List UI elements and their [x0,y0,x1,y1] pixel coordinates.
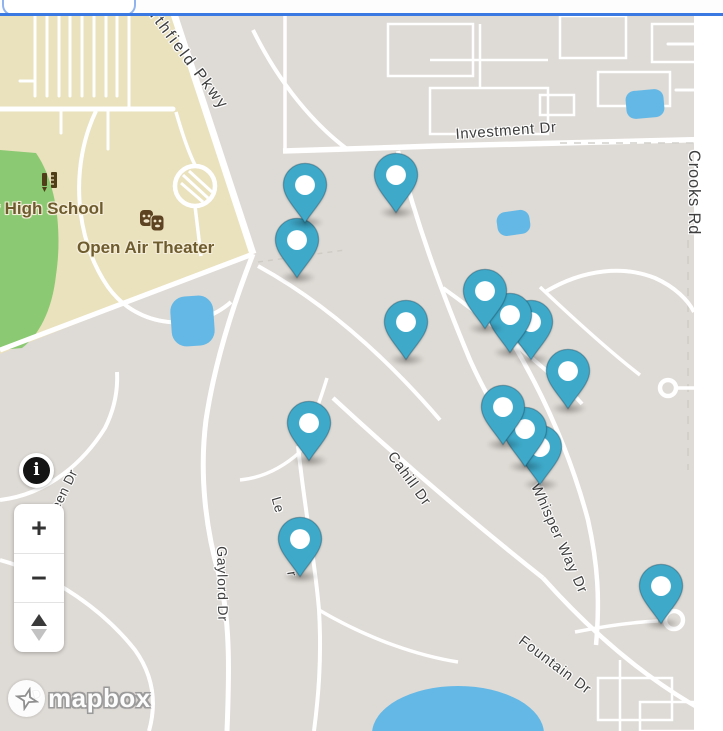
map-base [0,0,723,731]
map-marker[interactable] [372,152,420,214]
topbar-divider [0,13,723,16]
school-icon [38,170,62,199]
compass-pitch-button[interactable] [14,603,64,652]
map-marker[interactable] [382,299,430,361]
map-canvas[interactable]: Troy High School Open Air Theater Northf… [0,0,723,731]
map-marker[interactable] [285,400,333,462]
map-marker[interactable] [276,516,324,578]
mapbox-logo-icon [8,680,45,717]
info-icon: i [23,457,50,484]
street-label: Gaylord Dr [214,546,231,622]
zoom-control-panel: + − [14,504,64,652]
map-marker[interactable] [281,162,329,224]
browser-topbar [0,0,723,15]
zoom-in-button[interactable]: + [14,504,64,554]
arrow-up-icon [31,614,47,626]
info-button[interactable]: i [19,453,54,488]
mapbox-logo[interactable]: mapbox [8,680,151,717]
theater-masks-icon [139,208,166,238]
poi-label-theater: Open Air Theater [77,238,214,258]
arrow-down-icon [31,629,47,641]
map-marker[interactable] [479,384,527,446]
map-marker[interactable] [637,563,685,625]
street-label: Crooks Rd [684,150,703,235]
map-marker[interactable] [461,268,509,330]
mapbox-wordmark: mapbox [48,683,151,714]
zoom-out-button[interactable]: − [14,554,64,604]
poi-label-school: Troy High School [0,199,104,219]
